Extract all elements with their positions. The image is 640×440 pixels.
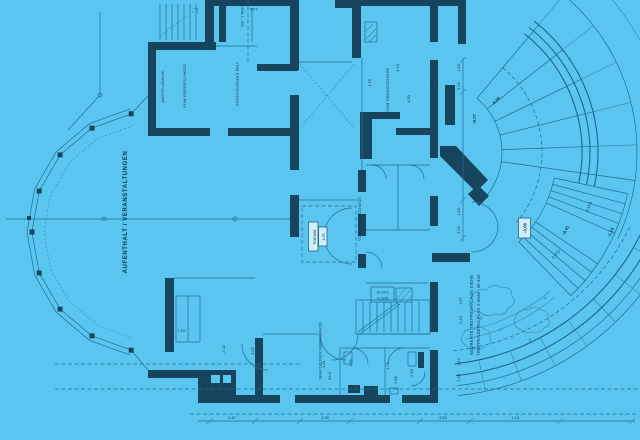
note-line-1: GEDREHTE TREPPENANLAGE SIEHE — [469, 275, 474, 355]
room-label-vom-1-og: VOM 1. OG — [240, 5, 245, 28]
dim-text: 1.39 — [348, 358, 353, 367]
elevation--0.77: -0.77 — [472, 113, 477, 124]
dim-text: 62.5 — [327, 371, 332, 380]
building-walls — [148, 0, 470, 403]
room-labels: AUFENTHALT / VERANSTALTUNGEN VOM ERDGESC… — [123, 5, 390, 380]
dim-text: 2.02 — [221, 344, 226, 353]
stair-notes: GEDREHTE TREPPENANLAGE SIEHE TREPPENDETA… — [469, 274, 481, 356]
dim-text: 1.12 — [456, 357, 461, 366]
stair-box-line-1: 16 STG — [376, 291, 389, 295]
door-swings — [242, 165, 425, 386]
room-label-podium: PODIUM — [313, 230, 317, 244]
curved-stair: 8 STG 8 STG — [464, 178, 628, 339]
stair-flight-a-label: 8 STG — [585, 201, 592, 212]
elevation--0.05: -0.05 — [491, 95, 502, 106]
dimension-texts: 7.10 2.02 4.95 1.91 62.5 1.39 1.79 2.10 … — [177, 7, 520, 420]
dim-text: 2.26 — [321, 415, 330, 420]
elevation--3.06: -3.06 — [522, 222, 527, 233]
dim-text: 7.10 — [177, 328, 186, 333]
room-label-vom-erdgeschoss-a: VOM ERDGESCHOSS — [235, 62, 240, 106]
elevation--0.41: -0.41 — [561, 224, 571, 236]
dim-text: 1.79 — [385, 361, 390, 370]
dim-text: 1.13 — [511, 415, 520, 420]
dim-text: 4.13 — [429, 78, 434, 87]
entry-angled-walls — [440, 85, 498, 252]
dim-text: 4.50 — [406, 94, 411, 103]
room-label-kueche: KÜCHE — [168, 336, 173, 351]
dim-text: 1.10 — [456, 63, 461, 72]
room-label-vom-erdgeschoss-c: VOM ERDGESCHOSS — [385, 68, 390, 112]
dim-text: 2.16 — [458, 315, 463, 324]
garden-arcs — [453, 227, 640, 395]
dim-text: 2.10 — [409, 368, 414, 377]
room-label-hall: AUFENTHALT / VERANSTALTUNGEN — [123, 151, 129, 274]
dim-text: 1.26 — [249, 7, 258, 12]
dim-text: 2.10 — [456, 373, 461, 382]
dim-text: 1.67 — [458, 296, 463, 305]
stair-box-line-2: 17,5/28 — [377, 297, 389, 301]
bay-window — [27, 96, 148, 370]
room-label-abstellraum: ABSTELLRAUM — [160, 71, 165, 103]
dim-text: 1.91 — [321, 359, 326, 368]
dim-text: 4.19 — [395, 63, 400, 72]
dim-text: 1.10 — [456, 207, 461, 216]
dim-text: 3.28 — [456, 81, 461, 90]
dim-text: 4.95 — [250, 346, 255, 355]
stair-flight-b-label: 8 STG — [551, 249, 561, 260]
floor-plan-canvas: 8 STG 8 STG — [0, 0, 640, 440]
terrace-fan — [477, 0, 640, 239]
dim-text: 4.50 — [439, 415, 448, 420]
interior-partitions — [174, 8, 430, 395]
bay-columns — [30, 111, 134, 352]
dim-text: 3.47 — [228, 415, 237, 420]
shaft-block — [206, 370, 236, 398]
room-label-schwimmbeckentechnik: SCHWIMMBECKENTECHNIK — [318, 322, 323, 380]
dim-text: 1.78 — [367, 78, 372, 87]
dim-text: 3.28 — [456, 225, 461, 234]
room-label-vom-erdgeschoss-b: VOM ERDGESCHOSS — [357, 197, 362, 241]
dimension-chains — [198, 57, 635, 424]
podium-level-label: 1.05 — [322, 234, 326, 241]
room-label-vom-erdgeschoss-d: VOM ERDGESCHOSS — [182, 64, 187, 108]
note-line-2: TREPPENDETAILPLAN 2.5648 · BI-448 — [476, 274, 481, 356]
dim-text: 3.88 — [393, 375, 398, 384]
blueprint-page: 8 STG 8 STG — [0, 0, 640, 440]
